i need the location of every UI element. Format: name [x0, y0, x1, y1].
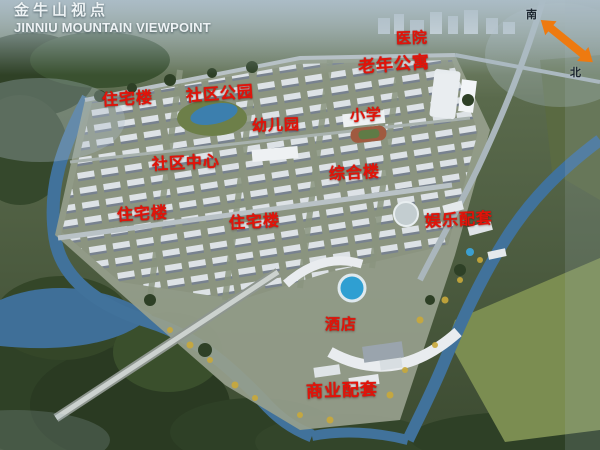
- aerial-masterplan-view: 金牛山视点 JINNIU MOUNTAIN VIEWPOINT 南 北 医院 老…: [0, 0, 600, 450]
- map-label-commercial-facilities: 商业配套: [306, 381, 379, 401]
- compass-north-label: 北: [570, 64, 581, 80]
- map-label-residential-3: 住宅楼: [229, 214, 281, 233]
- viewpoint-title: 金牛山视点 JINNIU MOUNTAIN VIEWPOINT: [14, 3, 211, 35]
- compass: 南 北: [512, 0, 600, 85]
- map-label-primary-school: 小学: [350, 107, 383, 124]
- title-english: JINNIU MOUNTAIN VIEWPOINT: [14, 20, 211, 36]
- central-pool: [339, 275, 365, 301]
- map-label-residential-2: 住宅楼: [117, 206, 169, 225]
- aerial-rendering: [0, 0, 600, 450]
- map-label-hospital: 医院: [396, 30, 429, 46]
- compass-south-label: 南: [526, 6, 537, 22]
- map-label-mixed-use-building: 综合楼: [329, 165, 381, 184]
- map-label-kindergarten: 幼儿园: [252, 117, 301, 134]
- title-chinese: 金牛山视点: [14, 3, 211, 20]
- map-label-residential-1: 住宅楼: [102, 91, 154, 110]
- map-label-senior-apartments: 老年公寓: [357, 54, 430, 76]
- map-label-hotel: 酒店: [325, 317, 357, 332]
